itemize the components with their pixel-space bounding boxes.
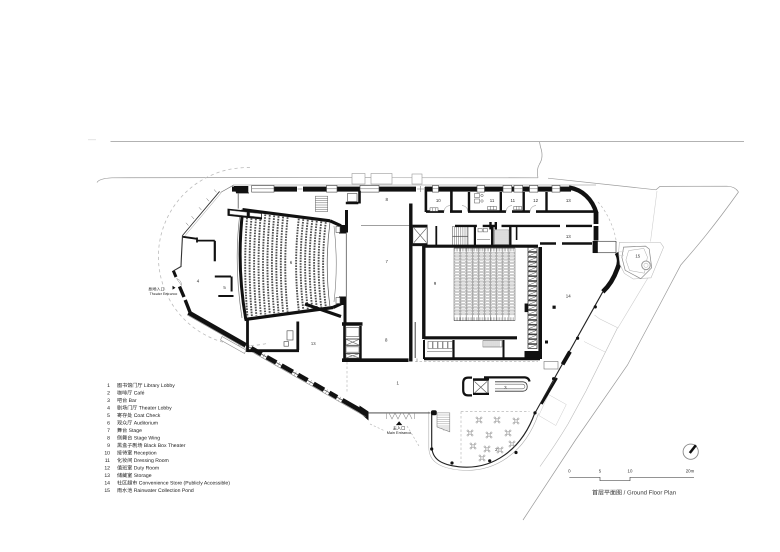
svg-text:咖啡厅 Café: 咖啡厅 Café xyxy=(117,390,145,397)
svg-text:观众厅 Auditorium: 观众厅 Auditorium xyxy=(117,420,158,427)
svg-text:10: 10 xyxy=(436,198,441,203)
svg-text:舞台 Stage: 舞台 Stage xyxy=(117,427,142,434)
svg-text:化妆间 Dressing Room: 化妆间 Dressing Room xyxy=(117,457,169,464)
svg-text:8: 8 xyxy=(107,436,110,442)
svg-text:社区超市 Convenience Store (Public: 社区超市 Convenience Store (Publicly Accessi… xyxy=(117,480,230,487)
svg-text:6: 6 xyxy=(107,421,110,427)
svg-text:10: 10 xyxy=(104,451,110,457)
svg-text:12: 12 xyxy=(533,198,538,203)
svg-text:13: 13 xyxy=(104,473,110,479)
svg-text:14: 14 xyxy=(566,294,571,299)
svg-text:吧台 Bar: 吧台 Bar xyxy=(117,397,137,404)
svg-text:13: 13 xyxy=(311,341,316,346)
svg-text:15: 15 xyxy=(635,253,640,258)
svg-text:1: 1 xyxy=(107,383,110,389)
svg-text:值班室 Duty Room: 值班室 Duty Room xyxy=(117,465,159,472)
svg-text:雨水池 Rainwater Collection Pond: 雨水池 Rainwater Collection Pond xyxy=(117,487,194,494)
svg-text:侧舞台 Stage Wing: 侧舞台 Stage Wing xyxy=(117,435,160,442)
svg-text:15: 15 xyxy=(104,488,110,494)
svg-text:图书馆门厅 Library Lobby: 图书馆门厅 Library Lobby xyxy=(117,382,175,389)
svg-text:主入口: 主入口 xyxy=(393,425,406,430)
svg-text:首层平面图 / Ground Floor Plan: 首层平面图 / Ground Floor Plan xyxy=(592,489,676,497)
svg-text:9: 9 xyxy=(107,443,110,449)
svg-text:寄存处 Coat Check: 寄存处 Coat Check xyxy=(117,412,161,419)
svg-text:5: 5 xyxy=(107,413,110,419)
svg-text:黑盒子剧场 Black Box Theater: 黑盒子剧场 Black Box Theater xyxy=(117,442,186,449)
svg-text:接待室 Reception: 接待室 Reception xyxy=(117,450,157,457)
svg-text:13: 13 xyxy=(566,234,571,239)
svg-text:20m: 20m xyxy=(686,469,695,474)
svg-text:14: 14 xyxy=(104,481,110,487)
svg-text:2: 2 xyxy=(107,391,110,397)
svg-text:剧场门厅 Theater Lobby: 剧场门厅 Theater Lobby xyxy=(117,405,172,412)
svg-text:11: 11 xyxy=(105,458,110,464)
svg-text:11: 11 xyxy=(490,198,495,203)
svg-text:剧场入口: 剧场入口 xyxy=(149,286,165,291)
svg-text:3: 3 xyxy=(107,398,110,404)
svg-text:13: 13 xyxy=(566,198,571,203)
svg-text:4: 4 xyxy=(107,406,110,412)
svg-text:11: 11 xyxy=(511,198,516,203)
svg-text:10: 10 xyxy=(628,469,633,474)
svg-text:Theater Entrance: Theater Entrance xyxy=(150,292,178,296)
svg-text:Main Entrance: Main Entrance xyxy=(387,431,411,435)
svg-text:7: 7 xyxy=(107,428,110,434)
svg-text:12: 12 xyxy=(104,466,110,472)
svg-text:储藏室 Storage: 储藏室 Storage xyxy=(117,472,152,479)
